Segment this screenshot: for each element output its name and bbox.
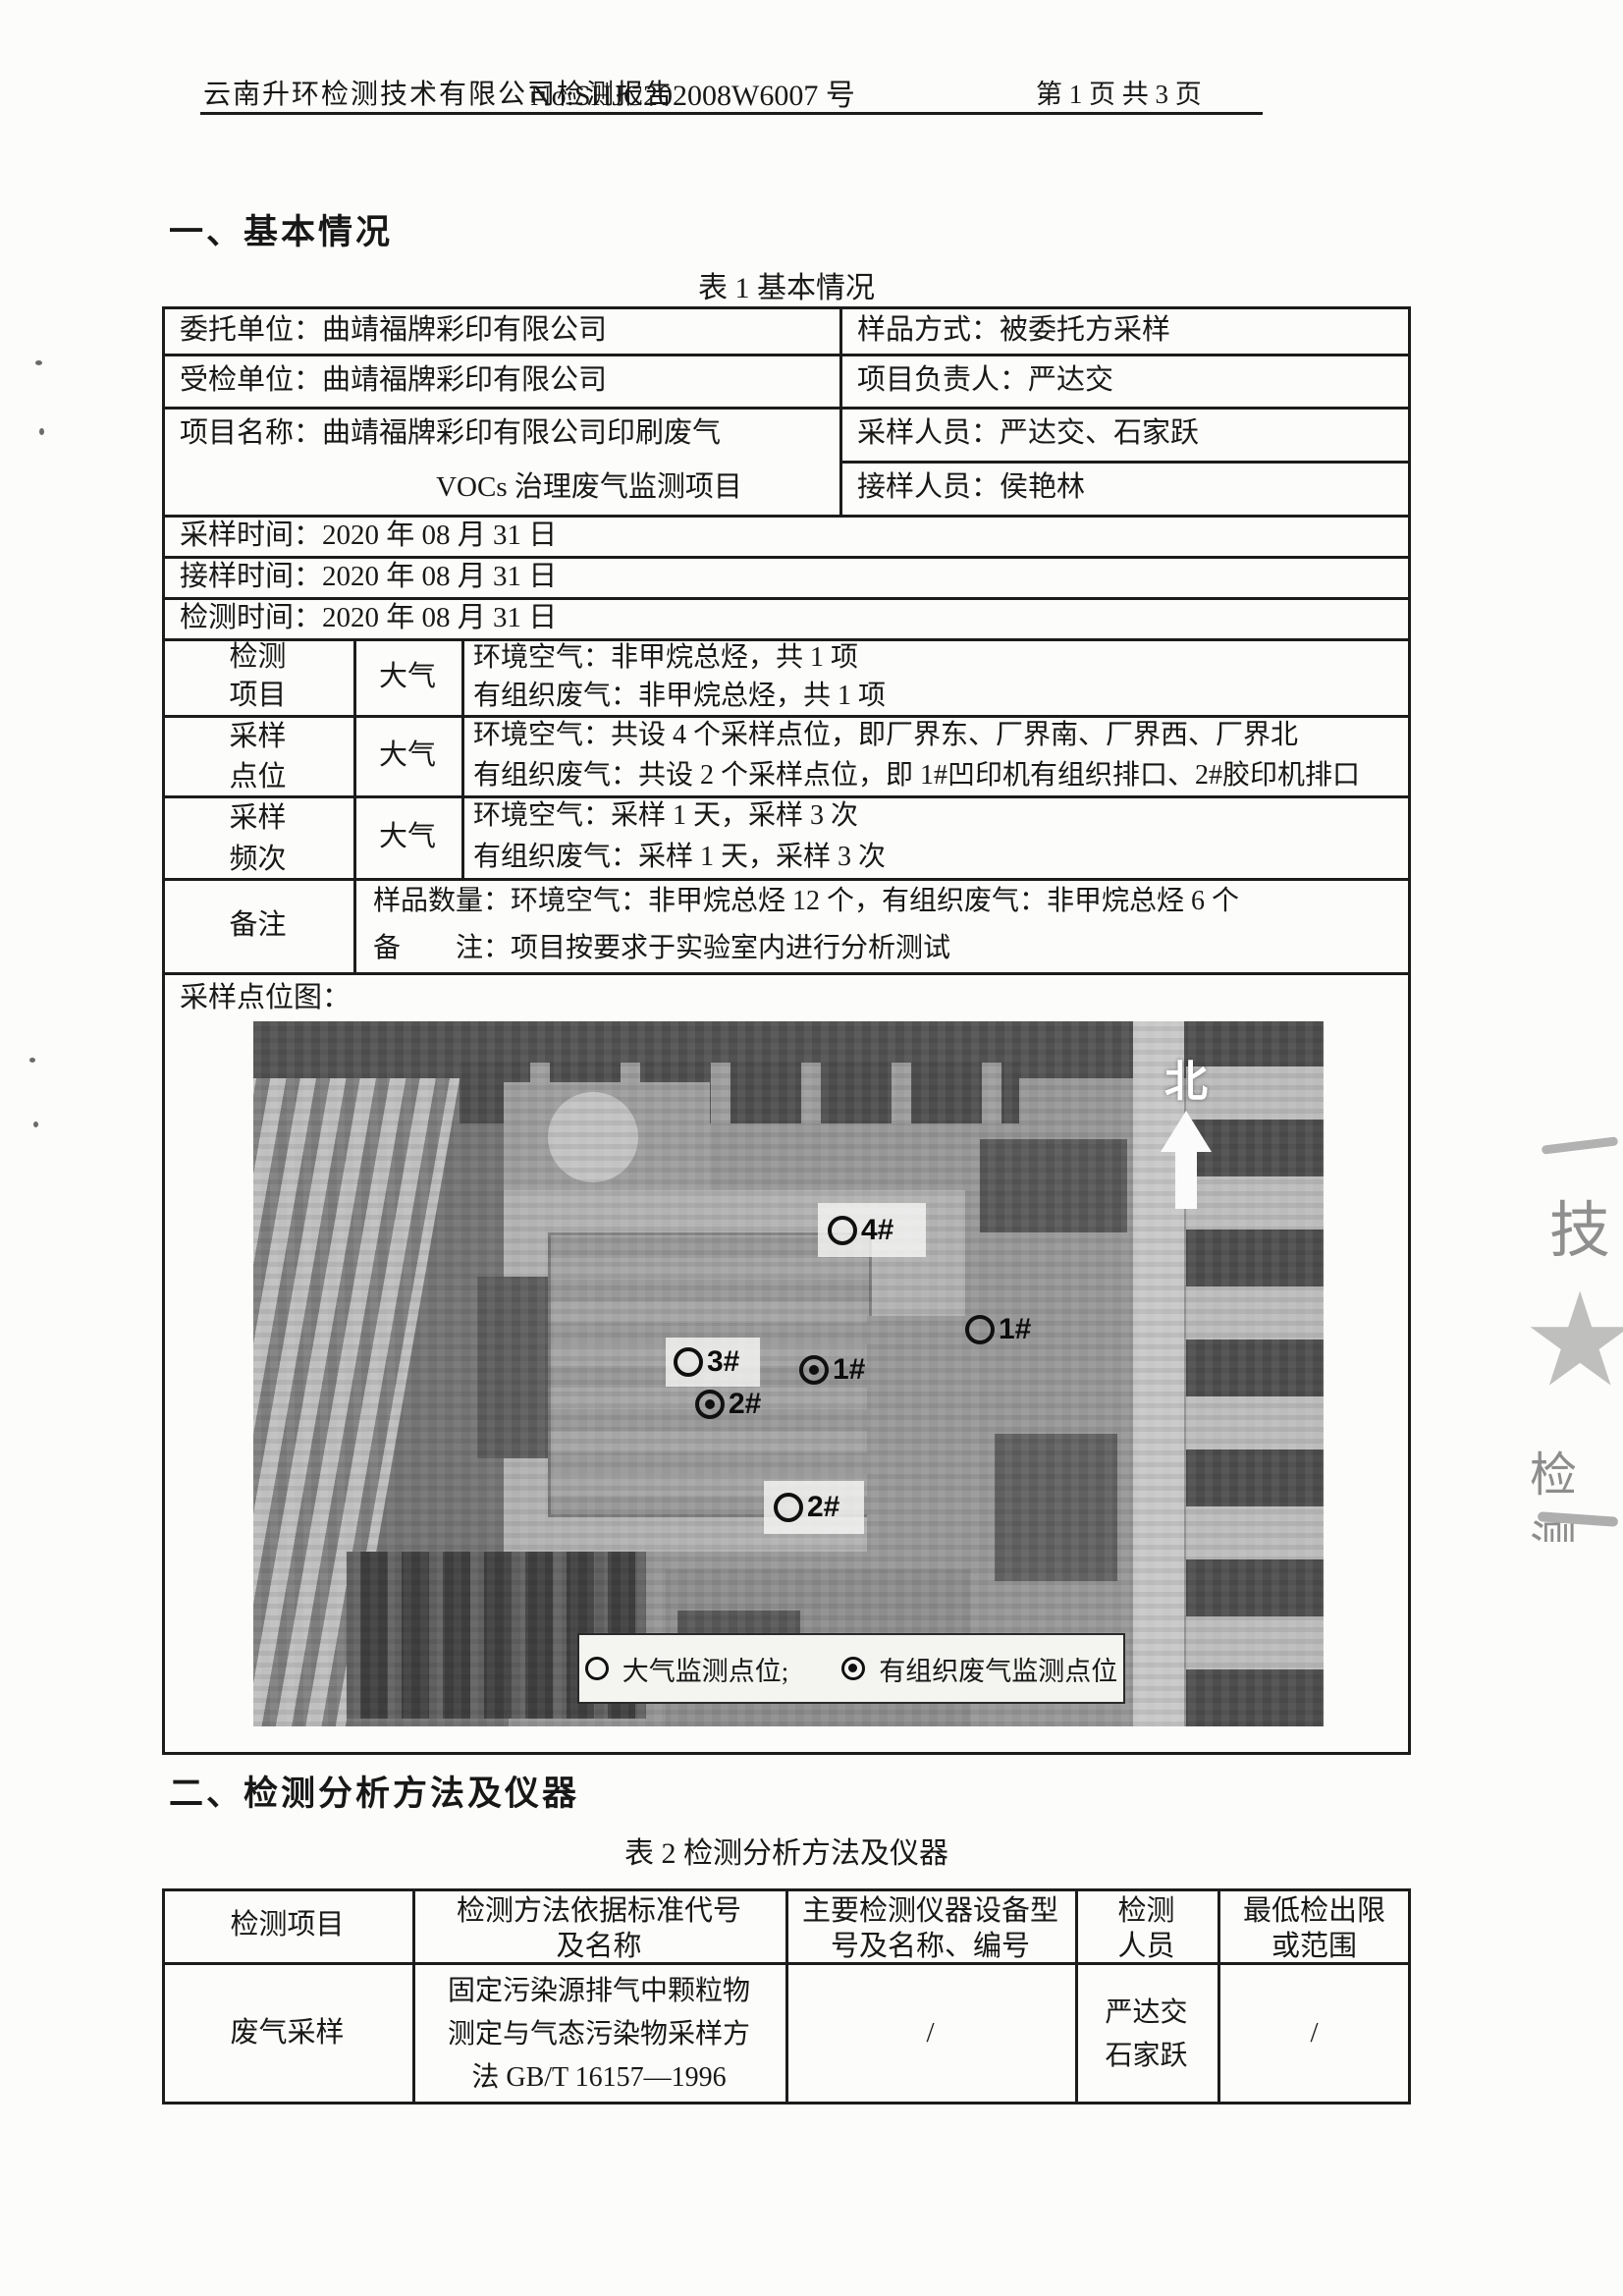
legend-air-label: 大气监测点位; bbox=[622, 1650, 789, 1688]
table2-header-method: 检测方法依据标准代号 及名称 bbox=[412, 1893, 785, 1964]
marker-label: 3# bbox=[707, 1345, 739, 1379]
table2-row-limit: / bbox=[1217, 1962, 1411, 2105]
receiving-time: 接样时间：2020 年 08 月 31 日 bbox=[180, 556, 557, 597]
map-marker-air-2: 2# bbox=[774, 1491, 839, 1524]
samplers: 采样人员：严达交、石家跃 bbox=[857, 407, 1199, 461]
entrust-unit: 委托单位：曲靖福牌彩印有限公司 bbox=[180, 306, 607, 354]
marker-label: 2# bbox=[807, 1491, 839, 1524]
table2-row-item: 废气采样 bbox=[162, 1962, 412, 2105]
test-items-line2: 有组织废气：非甲烷总烃，共 1 项 bbox=[473, 677, 886, 715]
section1-title: 一、基本情况 bbox=[169, 204, 393, 254]
header-page-info: 第 1 页 共 3 页 bbox=[1036, 73, 1202, 111]
scan-speck bbox=[39, 428, 44, 435]
remark-line2: 备 注：项目按要求于实验室内进行分析测试 bbox=[373, 925, 950, 972]
sampling-frequency-label: 采样 频次 bbox=[162, 797, 353, 880]
legend-organized-label: 有组织废气监测点位 bbox=[879, 1650, 1117, 1688]
north-arrow: 北 bbox=[1142, 1046, 1230, 1209]
air-point-icon bbox=[774, 1493, 803, 1522]
table2-header-item: 检测项目 bbox=[162, 1888, 412, 1962]
section2-title: 二、检测分析方法及仪器 bbox=[169, 1766, 579, 1816]
project-name-line1: 项目名称：曲靖福牌彩印有限公司印刷废气 bbox=[180, 407, 721, 461]
north-arrow-stem bbox=[1175, 1152, 1197, 1209]
test-items-label: 检测 项目 bbox=[162, 638, 353, 715]
table1-rule bbox=[461, 638, 464, 878]
marker-label: 1# bbox=[999, 1313, 1031, 1346]
north-arrow-head bbox=[1161, 1111, 1212, 1152]
remark-line1: 样品数量：环境空气：非甲烷总烃 12 个，有组织废气：非甲烷总烃 6 个 bbox=[373, 878, 1239, 925]
sampling-points-label: 采样 点位 bbox=[162, 717, 353, 797]
scan-speck bbox=[33, 1121, 38, 1127]
test-items-line1: 环境空气：非甲烷总烃，共 1 项 bbox=[473, 638, 858, 677]
sampling-frequency-line2: 有组织废气：采样 1 天，采样 3 次 bbox=[473, 837, 886, 878]
inspected-unit: 受检单位：曲靖福牌彩印有限公司 bbox=[180, 354, 607, 407]
sampling-frequency-category: 大气 bbox=[353, 795, 461, 878]
remark-label: 备注 bbox=[162, 878, 353, 972]
sampling-points-line1: 环境空气：共设 4 个采样点位，即厂界东、厂界南、厂界西、厂界北 bbox=[473, 715, 1298, 755]
sample-method: 样品方式：被委托方采样 bbox=[857, 306, 1170, 354]
table2-header-instrument: 主要检测仪器设备型 号及名称、编号 bbox=[785, 1893, 1075, 1964]
satellite-image: 北 4# 1# 3# 1# 2# 2# bbox=[253, 1021, 1324, 1726]
table1-rule bbox=[162, 972, 1411, 975]
map-label: 采样点位图： bbox=[180, 978, 351, 1017]
test-items-category: 大气 bbox=[353, 638, 461, 715]
table2-row-personnel: 严达交 石家跃 bbox=[1075, 1992, 1217, 2078]
organized-point-icon bbox=[841, 1657, 865, 1680]
table1-rule bbox=[839, 306, 842, 515]
table2-caption: 表 2 检测分析方法及仪器 bbox=[162, 1829, 1411, 1872]
sampling-time: 采样时间：2020 年 08 月 31 日 bbox=[180, 515, 557, 556]
organized-point-icon bbox=[695, 1390, 725, 1419]
map-marker-air-4: 4# bbox=[828, 1214, 893, 1247]
report-page: 云南升环检测技术有限公司检测报告 No:SHJC202008W6007 号 第 … bbox=[0, 0, 1623, 2296]
seal-stamp: 技 ★ 检测 bbox=[1520, 1120, 1623, 1542]
table2-header-personnel: 检测 人员 bbox=[1075, 1893, 1217, 1964]
map-marker-organized-1: 1# bbox=[799, 1353, 865, 1387]
air-point-icon bbox=[674, 1347, 703, 1377]
sample-receiver: 接样人员：侯艳林 bbox=[857, 461, 1085, 515]
seal-star-icon: ★ bbox=[1522, 1265, 1623, 1416]
air-point-icon bbox=[965, 1315, 995, 1344]
scan-speck bbox=[29, 1058, 35, 1063]
testing-time: 检测时间：2020 年 08 月 31 日 bbox=[180, 597, 557, 638]
sampling-frequency-line1: 环境空气：采样 1 天，采样 3 次 bbox=[473, 795, 858, 837]
header-rule bbox=[200, 112, 1263, 115]
organized-point-icon bbox=[799, 1355, 829, 1385]
table2-row-method: 固定污染源排气中颗粒物 测定与气态污染物采样方 法 GB/T 16157—199… bbox=[412, 1970, 785, 2100]
north-label: 北 bbox=[1142, 1046, 1230, 1109]
marker-label: 1# bbox=[833, 1353, 865, 1387]
header-report-number: No:SHJC202008W6007 号 bbox=[530, 71, 855, 114]
table1-caption: 表 1 基本情况 bbox=[162, 263, 1411, 306]
marker-label: 2# bbox=[729, 1388, 761, 1421]
project-leader: 项目负责人：严达交 bbox=[857, 354, 1113, 407]
air-point-icon bbox=[828, 1216, 857, 1245]
project-name-line2: VOCs 治理废气监测项目 bbox=[339, 461, 839, 515]
map-marker-air-3: 3# bbox=[674, 1345, 739, 1379]
seal-arc bbox=[1542, 1136, 1619, 1154]
table2-row-instrument: / bbox=[785, 1962, 1075, 2105]
air-point-icon bbox=[585, 1657, 609, 1680]
sampling-points-category: 大气 bbox=[353, 715, 461, 795]
map-legend: 大气监测点位; 有组织废气监测点位 bbox=[577, 1633, 1125, 1704]
scan-speck bbox=[35, 360, 42, 365]
seal-char-top: 技 bbox=[1549, 1180, 1610, 1269]
sampling-points-line2: 有组织废气：共设 2 个采样点位，即 1#凹印机有组织排口、2#胶印机排口 bbox=[473, 755, 1360, 795]
map-marker-organized-2: 2# bbox=[695, 1388, 761, 1421]
table2-header-limit: 最低检出限 或范围 bbox=[1217, 1893, 1411, 1964]
marker-label: 4# bbox=[861, 1214, 893, 1247]
map-marker-air-1: 1# bbox=[965, 1313, 1031, 1346]
